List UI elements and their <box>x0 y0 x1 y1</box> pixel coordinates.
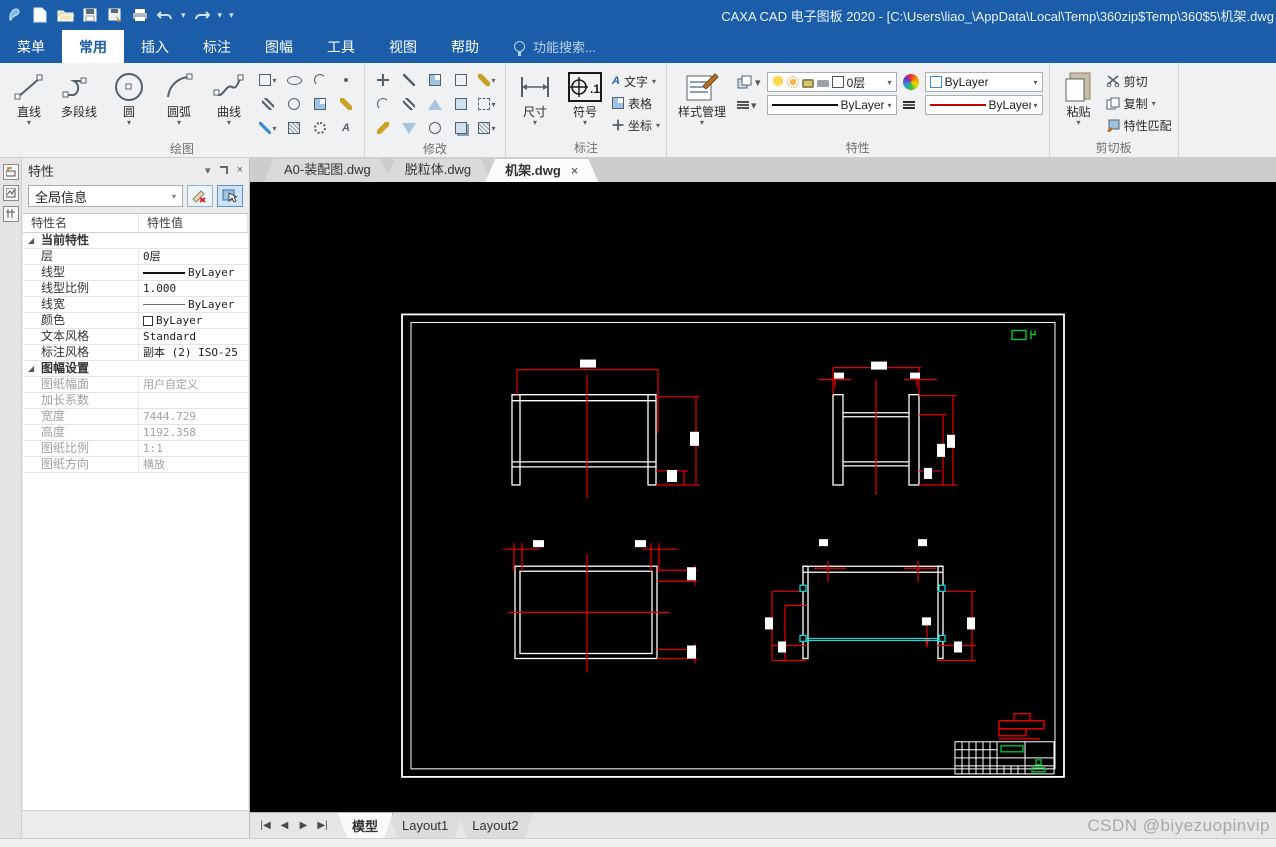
property-value[interactable]: 1.000 <box>139 281 248 296</box>
lineweight-swatch <box>143 304 185 305</box>
group-label-clipboard: 剪切板 <box>1056 139 1172 157</box>
coordinate-button[interactable]: 坐标▾ <box>612 114 660 136</box>
linetype-swatch <box>772 104 838 106</box>
ribbon-group-properties: 样式管理▾ ▾ ▾ 0层 ▾ <box>667 63 1050 157</box>
undo-icon[interactable] <box>156 6 174 24</box>
property-name: 颜色 <box>23 313 139 328</box>
col-property-value: 特性值 <box>139 214 248 232</box>
selected-entity[interactable] <box>800 585 945 641</box>
menu-tab-help[interactable]: 帮助 <box>434 30 496 63</box>
title-bar: ▾ ▾ ▾ CAXA CAD 电子图板 2020 - [C:\Users\lia… <box>0 0 1276 30</box>
pin-icon[interactable] <box>220 166 228 174</box>
green-annotation <box>1012 330 1035 339</box>
property-row[interactable]: 层0层 <box>23 249 248 265</box>
text-button[interactable]: A文字▾ <box>612 70 660 92</box>
polyline-icon <box>62 69 96 105</box>
properties-table: 特性名 特性值 当前特性◢层0层线型ByLayer线型比例1.000线宽ByLa… <box>23 213 248 810</box>
linetype-swatch <box>143 272 185 274</box>
property-value[interactable]: 1:1 <box>139 441 248 456</box>
properties-panel: 特性 ▾ × 全局信息 ▾ <box>22 158 249 838</box>
scale-tool-icon[interactable] <box>449 68 473 92</box>
save-icon[interactable] <box>81 6 99 24</box>
dimension-button[interactable]: 尺寸▾ <box>512 66 558 127</box>
property-value[interactable] <box>139 393 248 408</box>
tab-layout1[interactable]: Layout1 <box>388 813 463 838</box>
property-group-row[interactable]: 当前特性◢ <box>23 233 248 249</box>
first-layout-icon[interactable]: |◀ <box>258 820 273 831</box>
next-layout-icon[interactable]: ▶ <box>296 820 311 831</box>
symbol-icon: .1 <box>568 69 602 105</box>
text-box-tool-icon[interactable]: A <box>334 116 358 140</box>
menu-tab-tools[interactable]: 工具 <box>310 30 372 63</box>
status-strip <box>0 838 1276 847</box>
property-row[interactable]: 线宽ByLayer <box>23 297 248 313</box>
point-tool-icon[interactable] <box>334 68 358 92</box>
arc-button[interactable]: 圆弧▾ <box>156 66 202 127</box>
doc-tab-tuoliti[interactable]: 脱粒体.dwg <box>385 159 491 182</box>
copy-button[interactable]: 复制▾ <box>1106 92 1172 114</box>
rotate-copy-tool-icon[interactable] <box>423 116 447 140</box>
tab-model[interactable]: 模型 <box>338 813 393 838</box>
explode-tool-icon[interactable]: ▾ <box>475 116 499 140</box>
ribbon-group-clipboard: 粘贴▾ 剪切 复制▾ 特性匹配 剪切板 <box>1050 63 1179 157</box>
flange-tool-icon[interactable] <box>308 92 332 116</box>
match-properties-icon <box>1106 119 1120 132</box>
spline-button[interactable]: 曲线▾ <box>206 66 252 127</box>
match-properties-button[interactable]: 特性匹配 <box>1106 114 1172 136</box>
property-row[interactable]: 图纸比例1:1 <box>23 441 248 457</box>
properties-panel-header: 特性 ▾ × <box>22 158 249 182</box>
select-objects-button[interactable] <box>217 185 243 207</box>
properties-panel-title: 特性 <box>28 161 54 180</box>
property-name: 宽度 <box>23 409 139 424</box>
ribbon-group-draw: 直线▾ 多段线 圆▾ 圆弧▾ 曲线▾ <box>0 63 365 157</box>
property-name: 文本风格 <box>23 329 139 344</box>
panel-menu-icon[interactable]: ▾ <box>205 164 211 177</box>
color-swatch <box>143 316 153 326</box>
property-row[interactable]: 线型比例1.000 <box>23 281 248 297</box>
layer-combo[interactable]: 0层 ▾ <box>767 72 897 92</box>
redo-dropdown-icon[interactable]: ▾ <box>218 10 223 21</box>
curve-tool-icon[interactable] <box>308 68 332 92</box>
paste-icon <box>1064 69 1094 105</box>
property-value[interactable]: Standard <box>139 329 248 344</box>
circle-icon <box>114 69 144 105</box>
property-name: 图纸幅面 <box>23 377 139 392</box>
watermark: CSDN @biyezuopinvip <box>1087 816 1276 836</box>
open-file-icon[interactable] <box>56 6 74 24</box>
properties-table-header: 特性名 特性值 <box>23 214 248 233</box>
modify-small-tools: ▾ ▾ ▾ <box>371 66 499 140</box>
menu-tab-annotate[interactable]: 标注 <box>186 30 248 63</box>
group-label-properties: 特性 <box>673 139 1043 157</box>
property-group-row[interactable]: 图幅设置◢ <box>23 361 248 377</box>
color-swatch <box>930 76 942 88</box>
properties-panel-tab-icon[interactable] <box>3 164 19 180</box>
clear-selection-button[interactable] <box>187 185 213 207</box>
last-layout-icon[interactable]: ▶| <box>315 820 330 831</box>
property-value[interactable]: 副本 (2) ISO-25 <box>139 345 248 360</box>
window-title: CAXA CAD 电子图板 2020 - [C:\Users\liao_\App… <box>234 6 1276 25</box>
layout-bar: |◀ ◀ ▶ ▶| 模型 Layout1 Layout2 CSDN @biyez… <box>250 812 1276 838</box>
group-label-modify: 修改 <box>371 140 499 157</box>
property-name: 图纸方向 <box>23 457 139 472</box>
property-row[interactable]: 加长系数 <box>23 393 248 409</box>
red-stamp <box>999 714 1044 739</box>
style-manager-button[interactable]: 样式管理▾ <box>673 66 731 127</box>
arrow-tool-icon[interactable] <box>334 92 358 116</box>
cut-button[interactable]: 剪切 <box>1106 70 1172 92</box>
quick-access-toolbar: ▾ ▾ ▾ <box>0 6 234 24</box>
drawing-canvas[interactable] <box>250 182 1276 812</box>
library-panel-tab-icon[interactable] <box>3 185 19 201</box>
ribbon: 直线▾ 多段线 圆▾ 圆弧▾ 曲线▾ <box>0 63 1276 158</box>
cut-icon <box>1106 75 1120 87</box>
search-placeholder: 功能搜索... <box>533 37 596 56</box>
ribbon-group-modify: ▾ ▾ ▾ 修改 <box>365 63 506 157</box>
line-icon <box>14 69 44 105</box>
cad-drawing <box>250 182 1276 812</box>
collapse-icon[interactable]: ◢ <box>28 361 34 376</box>
polyline-button[interactable]: 多段线 <box>56 66 102 119</box>
axis-line-tool-icon[interactable]: ▾ <box>256 116 280 140</box>
property-value[interactable]: ByLayer <box>139 313 248 328</box>
copy-icon <box>1106 97 1120 110</box>
search-icon <box>514 41 525 52</box>
mirror-tool-icon[interactable] <box>423 92 447 116</box>
function-search[interactable]: 功能搜索... <box>514 30 596 63</box>
layout-nav: |◀ ◀ ▶ ▶| <box>250 820 338 831</box>
color-wheel-icon[interactable] <box>901 72 921 92</box>
menu-tab-menu[interactable]: 菜单 <box>0 30 62 63</box>
property-name: 标注风格 <box>23 345 139 360</box>
new-file-icon[interactable] <box>31 6 49 24</box>
layer-lock-icon[interactable] <box>802 79 814 88</box>
layer-print-icon[interactable] <box>817 80 829 87</box>
ribbon-group-dimension: 尺寸▾ .1 符号▾ A文字▾ 表格 坐标▾ 标注 <box>506 63 667 157</box>
property-name: 加长系数 <box>23 393 139 408</box>
property-value[interactable]: 1192.358 <box>139 425 248 440</box>
draw-small-tools: ▾ ▾ A <box>256 66 358 140</box>
dimension-icon <box>519 69 551 105</box>
erase-tool-icon[interactable]: ▾ <box>475 68 499 92</box>
arc-icon <box>164 69 194 105</box>
group-label-dimension: 标注 <box>512 139 660 157</box>
property-row[interactable]: 颜色ByLayer <box>23 313 248 329</box>
property-name: 高度 <box>23 425 139 440</box>
property-row[interactable]: 图纸方向横放 <box>23 457 248 473</box>
side-tab-strip <box>0 158 22 838</box>
tab-layout2[interactable]: Layout2 <box>458 813 533 838</box>
rectangle-tool-icon[interactable]: ▾ <box>256 68 280 92</box>
property-value[interactable]: 横放 <box>139 457 248 472</box>
property-group-name: 当前特性◢ <box>23 233 248 248</box>
property-row[interactable]: 标注风格副本 (2) ISO-25 <box>23 345 248 361</box>
style-manager-icon <box>685 69 719 105</box>
col-property-name: 特性名 <box>23 214 139 232</box>
menu-tab-common[interactable]: 常用 <box>62 30 124 63</box>
menu-bar: 菜单 常用 插入 标注 图幅 工具 视图 帮助 功能搜索... <box>0 30 1276 63</box>
save-as-icon[interactable] <box>106 6 124 24</box>
menu-tab-view[interactable]: 视图 <box>372 30 434 63</box>
table-button[interactable]: 表格 <box>612 92 660 114</box>
properties-panel-footer <box>22 810 249 838</box>
property-value[interactable]: 0层 <box>139 249 248 264</box>
line-button[interactable]: 直线▾ <box>6 66 52 127</box>
layer-color-swatch <box>832 76 844 88</box>
property-value[interactable]: ByLayer <box>139 265 248 280</box>
doc-tab-jijia[interactable]: 机架.dwg× <box>485 159 598 182</box>
lineweight-swatch <box>930 104 986 106</box>
properties-table-body: 当前特性◢层0层线型ByLayer线型比例1.000线宽ByLayer颜色ByL… <box>23 233 248 473</box>
doc-tab-close-icon[interactable]: × <box>571 160 579 182</box>
property-row[interactable]: 线型ByLayer <box>23 265 248 281</box>
lineweight-combo[interactable]: ByLayer ▾ <box>925 95 1043 115</box>
hole-tool-icon[interactable] <box>282 92 306 116</box>
spline-icon <box>213 69 245 105</box>
print-icon[interactable] <box>131 6 149 24</box>
hatch-tool-icon[interactable] <box>282 116 306 140</box>
doc-tab-assembly[interactable]: A0-装配图.dwg <box>264 159 391 182</box>
lineweight-icon[interactable] <box>901 95 921 115</box>
parallel-lines-tool-icon[interactable] <box>256 92 280 116</box>
circle-button[interactable]: 圆▾ <box>106 66 152 127</box>
move-tool-icon[interactable] <box>371 68 395 92</box>
property-name: 线宽 <box>23 297 139 312</box>
property-group-name: 图幅设置◢ <box>23 361 248 376</box>
undo-dropdown-icon[interactable]: ▾ <box>181 10 186 21</box>
menu-tab-insert[interactable]: 插入 <box>124 30 186 63</box>
gear-tool-icon[interactable] <box>308 116 332 140</box>
left-panel-column: 特性 ▾ × 全局信息 ▾ <box>0 158 250 838</box>
ellipse-tool-icon[interactable] <box>282 68 306 92</box>
property-row[interactable]: 图纸幅面用户自定义 <box>23 377 248 393</box>
property-name: 图纸比例 <box>23 441 139 456</box>
prev-layout-icon[interactable]: ◀ <box>277 820 292 831</box>
blocks-panel-tab-icon[interactable] <box>3 206 19 222</box>
document-tabs: A0-装配图.dwg 脱粒体.dwg 机架.dwg× <box>250 158 1276 182</box>
color-combo[interactable]: ByLayer ▾ <box>925 72 1043 92</box>
property-name: 线型比例 <box>23 281 139 296</box>
panel-close-icon[interactable]: × <box>237 164 243 176</box>
property-row[interactable]: 宽度7444.729 <box>23 409 248 425</box>
app-logo-icon[interactable] <box>6 6 24 24</box>
menu-tab-sheet[interactable]: 图幅 <box>248 30 310 63</box>
property-name: 层 <box>23 249 139 264</box>
array-tool-icon[interactable] <box>423 68 447 92</box>
block-tool-icon[interactable] <box>449 116 473 140</box>
fillet-tool-icon[interactable]: ▾ <box>475 92 499 116</box>
property-name: 线型 <box>23 265 139 280</box>
property-value[interactable]: 用户自定义 <box>139 377 248 392</box>
collapse-icon[interactable]: ◢ <box>28 233 34 248</box>
shear-tool-icon[interactable] <box>397 116 421 140</box>
selection-scope-combo[interactable]: 全局信息 ▾ <box>28 185 183 207</box>
property-value[interactable]: 7444.729 <box>139 409 248 424</box>
property-row[interactable]: 文本风格Standard <box>23 329 248 345</box>
property-row[interactable]: 高度1192.358 <box>23 425 248 441</box>
layer-visibility-icon[interactable] <box>772 76 784 88</box>
paste-button[interactable]: 粘贴▾ <box>1056 66 1102 127</box>
svg-text:.1: .1 <box>590 82 600 96</box>
extend-tool-icon[interactable] <box>397 92 421 116</box>
stretch-tool-icon[interactable] <box>449 92 473 116</box>
layer-tools-icon[interactable]: ▾ <box>735 72 763 92</box>
layer-freeze-icon[interactable] <box>787 76 799 88</box>
linetype-combo[interactable]: ByLayer ▾ <box>767 95 897 115</box>
property-value[interactable]: ByLayer <box>139 297 248 312</box>
redo-icon[interactable] <box>193 6 211 24</box>
trim-tool-icon[interactable] <box>397 68 421 92</box>
symbol-button[interactable]: .1 符号▾ <box>562 66 608 127</box>
chamfer-tool-icon[interactable] <box>371 116 395 140</box>
linetype-tools-icon[interactable]: ▾ <box>735 95 763 115</box>
rotate-tool-icon[interactable] <box>371 92 395 116</box>
group-label-draw: 绘图 <box>6 140 358 157</box>
